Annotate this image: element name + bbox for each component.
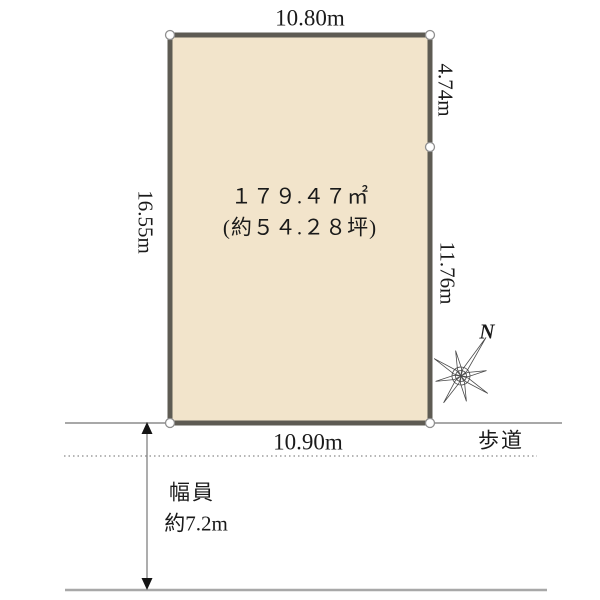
plot-area-tsubo: (約５４.２８坪) [223, 218, 377, 239]
dimension-right-lower: 11.76m [437, 242, 458, 305]
dimension-top: 10.80m [275, 7, 345, 30]
corner-marker-bottom-right [426, 419, 435, 428]
land-plot-diagram: 10.80m 16.55m 4.74m 11.76m 10.90m １７９.４７… [0, 0, 600, 600]
corner-marker-top-right [426, 31, 435, 40]
walkway-label: 歩道 [478, 431, 524, 452]
diagram-shapes [0, 0, 600, 600]
road-width-label: 幅員 [169, 483, 215, 504]
road-width-arrow [142, 422, 153, 590]
plot-area-sqm: １７９.４７㎡ [231, 187, 369, 208]
dimension-right-upper: 4.74m [435, 63, 456, 116]
compass-north-label: N [479, 322, 494, 343]
dimension-left: 16.55m [135, 190, 156, 254]
road-width-value: 約7.2m [164, 514, 228, 535]
corner-marker-bottom-left [166, 419, 175, 428]
dimension-bottom: 10.90m [273, 431, 343, 454]
boundary-point-marker-right [426, 143, 435, 152]
corner-marker-top-left [166, 31, 175, 40]
